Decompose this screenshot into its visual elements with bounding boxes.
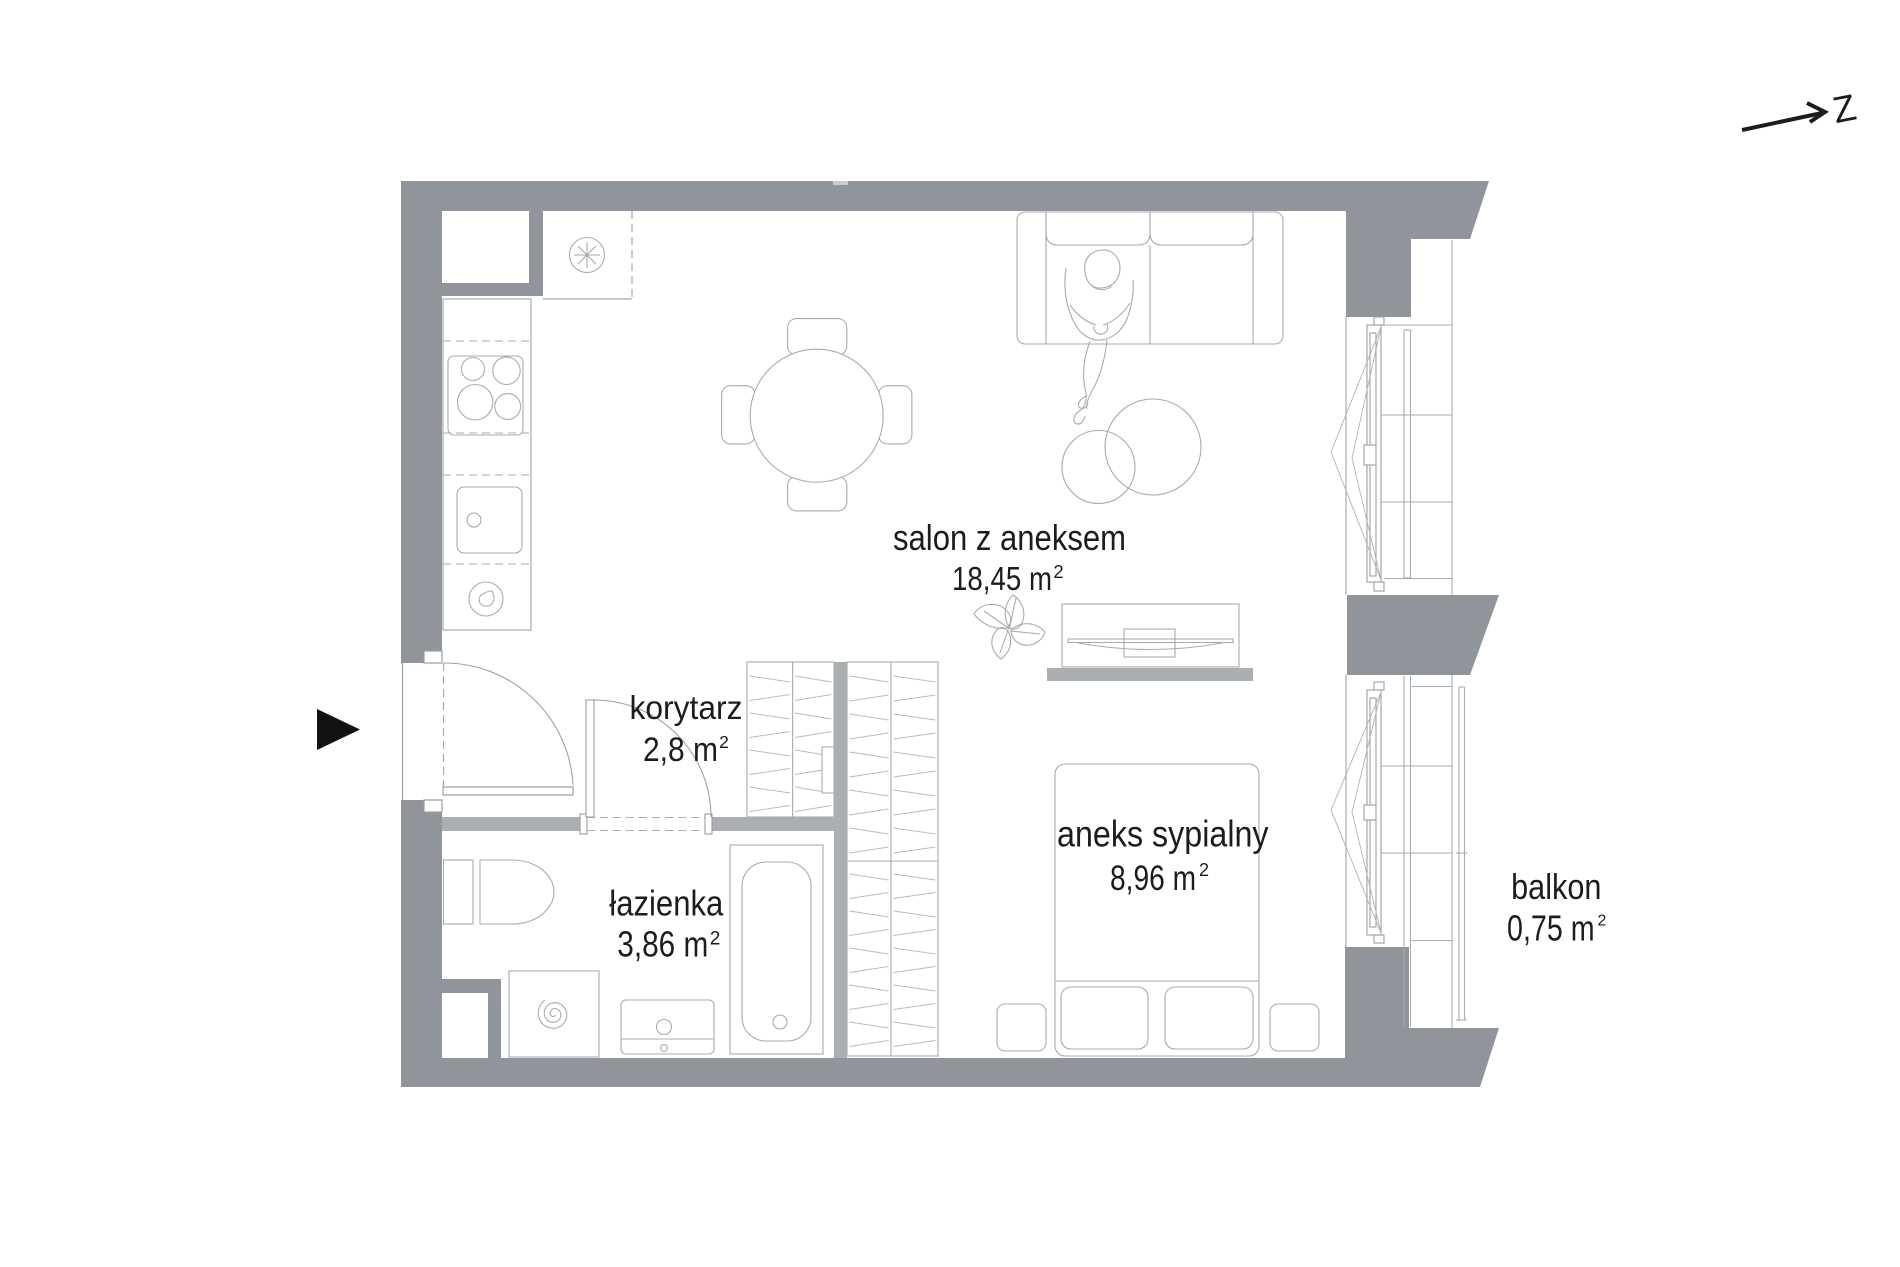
- svg-text:2: 2: [1598, 913, 1607, 930]
- svg-text:2: 2: [719, 732, 729, 752]
- svg-text:balkon: balkon: [1511, 866, 1601, 907]
- svg-text:2: 2: [1199, 860, 1209, 880]
- svg-text:0,75 m: 0,75 m: [1507, 908, 1595, 949]
- svg-text:8,96 m: 8,96 m: [1110, 858, 1196, 898]
- svg-text:2: 2: [710, 929, 721, 950]
- svg-text:3,86 m: 3,86 m: [617, 924, 708, 965]
- svg-text:aneks sypialny: aneks sypialny: [1057, 814, 1269, 855]
- svg-text:2,8 m: 2,8 m: [643, 731, 718, 769]
- svg-text:łazienka: łazienka: [609, 883, 724, 924]
- svg-text:salon z aneksem: salon z aneksem: [893, 517, 1126, 558]
- svg-text:korytarz: korytarz: [630, 689, 743, 726]
- svg-text:2: 2: [1053, 561, 1063, 582]
- svg-text:18,45 m: 18,45 m: [952, 560, 1052, 597]
